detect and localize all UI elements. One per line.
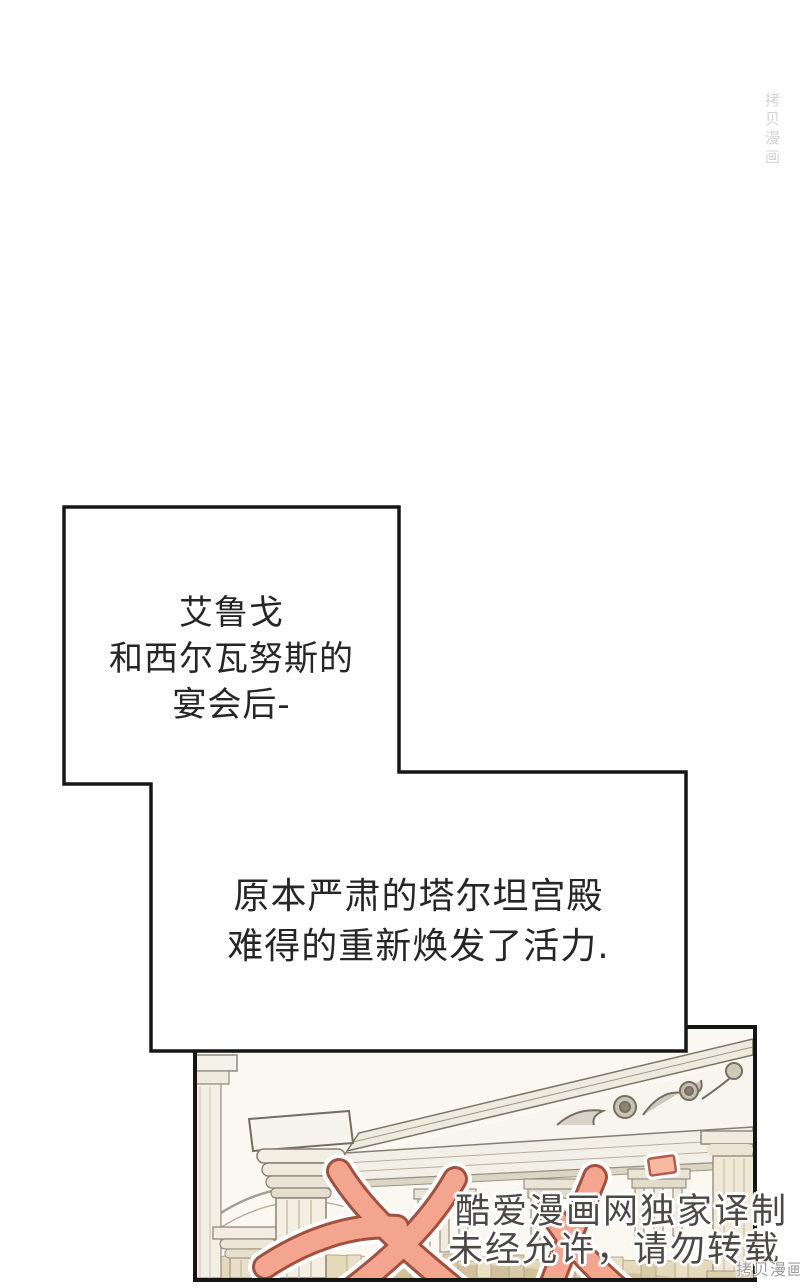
narration-box1-line2: 和西尔瓦努斯的 [64,636,399,682]
narration-box1: 艾鲁戈 和西尔瓦努斯的 宴会后- [64,590,399,728]
narration-box2: 原本严肃的塔尔坦宫殿 难得的重新焕发了活力. [151,872,686,972]
site-watermark-bottom: 拷贝漫画 [736,1256,800,1280]
narration-box2-line1: 原本严肃的塔尔坦宫殿 [151,872,686,922]
translator-watermark-line2: 未经允许，请勿转载 [448,1221,781,1272]
narration-box1-line1: 艾鲁戈 [64,590,399,636]
site-watermark-top: 拷贝漫画 [762,92,783,168]
narration-box2-line2: 难得的重新焕发了活力. [151,922,686,972]
narration-box1-line3: 宴会后- [64,682,399,728]
manhwa-page: { "page": {"background": "#ffffff"}, "na… [0,0,800,1288]
